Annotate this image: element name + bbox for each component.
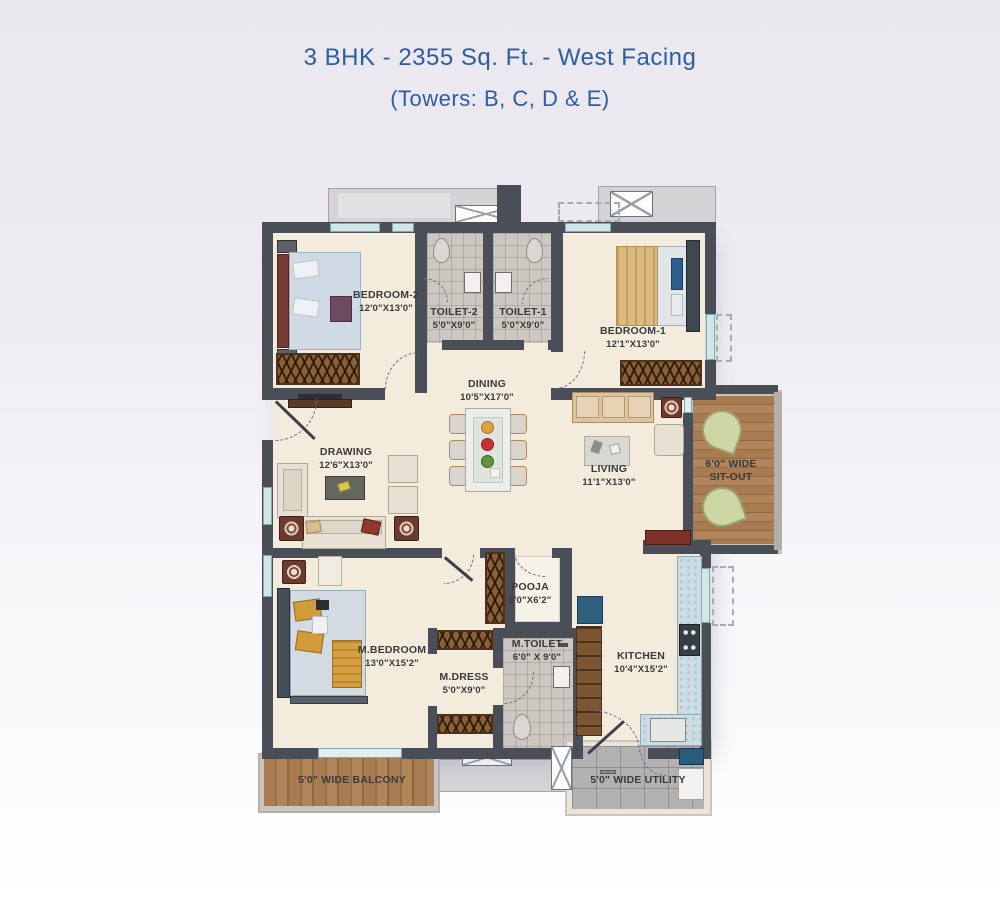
bed-blanket [616, 246, 658, 326]
room-dim: 5'0"X9'0" [439, 684, 488, 697]
wall-bottom-a [262, 748, 318, 759]
room-label-balcony: 5'0" WIDE BALCONY [298, 774, 406, 787]
wc-toilet1 [526, 238, 543, 263]
room-label-sitout: 6'0" WIDE SIT-OUT [705, 458, 756, 484]
room-label-drawing: DRAWING 12'6"X13'0" [319, 446, 373, 472]
wall-pooja-right [560, 548, 572, 632]
room-dim: 11'1"X13'0" [582, 476, 635, 489]
armchair [654, 424, 684, 456]
plate-icon [481, 421, 494, 434]
sofa-cushion [602, 396, 625, 418]
wall-mdress-left-a [428, 628, 437, 654]
cushion [305, 520, 322, 534]
armchair [388, 455, 418, 483]
balcony-slider-door [318, 748, 402, 758]
room-label-bedroom2: BEDROOM-2 12'0"X13'0" [353, 289, 419, 315]
room-label-mtoilet: M.TOILET 6'0" X 9'0" [512, 638, 562, 664]
room-dim: 12'1"X13'0" [600, 338, 666, 351]
refrigerator [577, 596, 603, 624]
room-label-mbedroom: M.BEDROOM 13'0"X15'2" [358, 644, 426, 670]
bed-bench [290, 696, 368, 704]
speaker [394, 516, 419, 541]
window [565, 223, 611, 232]
stove-icon [679, 624, 700, 656]
room-label-toilet1: TOILET-1 5'0"X9'0" [499, 306, 547, 332]
floor-plan: BEDROOM-2 12'0"X13'0" TOILET-2 5'0"X9'0"… [0, 0, 1000, 900]
room-name: M.TOILET [512, 638, 562, 651]
tv-console [645, 530, 691, 545]
armchair [388, 486, 418, 514]
speaker [661, 397, 682, 418]
window [330, 223, 380, 232]
pillow [312, 616, 328, 634]
plate-icon [481, 438, 494, 451]
napkin-icon [490, 468, 500, 478]
room-name: LIVING [582, 463, 635, 476]
wall-mdress-left-b [428, 706, 437, 748]
room-label-bedroom1: BEDROOM-1 12'1"X13'0" [600, 325, 666, 351]
room-name: 5'0" WIDE UTILITY [590, 774, 685, 787]
wall-sitout-bottom [711, 545, 778, 554]
bed-headboard [277, 254, 289, 348]
wall-toilets-divider [483, 233, 493, 345]
pillow [671, 294, 683, 316]
room-dim: 10'5"X17'0" [460, 391, 514, 404]
room-name: POOJA [509, 581, 552, 594]
sitout-parapet [774, 392, 782, 550]
bed-tray [316, 600, 329, 610]
pillow [671, 258, 683, 290]
window [263, 555, 272, 597]
wall-mtoilet-top [493, 628, 583, 638]
wardrobe-mdress-bottom [437, 714, 493, 734]
room-dim: 6'0" X 9'0" [512, 651, 562, 664]
room-label-mdress: M.DRESS 5'0"X9'0" [439, 671, 488, 697]
room-label-dining: DINING 10'5"X17'0" [460, 378, 514, 404]
washing-machine [679, 748, 704, 765]
salad-bowl-icon [481, 455, 494, 468]
top-corridor-landing [338, 193, 450, 218]
wardrobe-bedroom2 [276, 353, 360, 385]
room-name: M.BEDROOM [358, 644, 426, 657]
washbasin-toilet2 [464, 272, 481, 293]
room-dim: 5'0"X6'2" [509, 594, 552, 607]
room-name: SIT-OUT [705, 471, 756, 484]
projection-dashed-box [716, 314, 732, 362]
window [701, 568, 710, 623]
pillow [292, 259, 320, 279]
room-name: M.DRESS [439, 671, 488, 684]
wall-left-upper [262, 222, 273, 398]
floor-plan-page: 3 BHK - 2355 Sq. Ft. - West Facing (Towe… [0, 0, 1000, 900]
projection-dashed-box [712, 566, 734, 626]
room-dim: 5'0"X9'0" [499, 319, 547, 332]
wall-mdress-mtoilet-a [493, 628, 503, 668]
room-dim: 5'0"X9'0" [430, 319, 478, 332]
wall-right-upper-a [705, 222, 716, 314]
sitout-slider-door [684, 397, 692, 413]
projection-dashed-box [558, 202, 620, 222]
sofa-cushion [628, 396, 651, 418]
room-name: 6'0" WIDE [705, 458, 756, 471]
room-name: 5'0" WIDE BALCONY [298, 774, 406, 787]
room-name: TOILET-1 [499, 306, 547, 319]
wardrobe-bedroom1 [620, 360, 702, 386]
room-label-utility: 5'0" WIDE UTILITY [590, 774, 685, 787]
speaker [282, 560, 306, 584]
room-name: TOILET-2 [430, 306, 478, 319]
wall-living-sitout [683, 413, 693, 544]
room-label-kitchen: KITCHEN 10'4"X15'2" [614, 650, 668, 676]
washbasin-toilet1 [495, 272, 512, 293]
room-label-living: LIVING 11'1"X13'0" [582, 463, 635, 489]
room-name: DRAWING [319, 446, 373, 459]
wall-segment [497, 185, 521, 222]
sofa-cushion [576, 396, 599, 418]
speaker [279, 516, 304, 541]
room-label-pooja: POOJA 5'0"X6'2" [509, 581, 552, 607]
room-name: DINING [460, 378, 514, 391]
kitchen-sink [650, 718, 686, 742]
room-name: BEDROOM-1 [600, 325, 666, 338]
window [392, 223, 414, 232]
dining-chair [509, 414, 527, 434]
wall-mdress-mtoilet-b [493, 705, 503, 748]
wc-toilet2 [433, 238, 450, 263]
column-icon [551, 746, 572, 790]
wardrobe-mdress-top [437, 630, 493, 650]
bed-headboard [277, 588, 290, 698]
wall-toilet1-bed1 [551, 233, 563, 352]
room-dim: 13'0"X15'2" [358, 657, 426, 670]
pillow [292, 297, 320, 317]
loveseat-cushion [283, 469, 302, 511]
wardrobe-mbedroom [485, 552, 505, 624]
dining-chair [509, 440, 527, 460]
room-name: BEDROOM-2 [353, 289, 419, 302]
wall-drawing-mbed [262, 548, 442, 558]
window [706, 314, 715, 360]
window [263, 487, 272, 525]
room-dim: 12'6"X13'0" [319, 459, 373, 472]
bed-headboard [686, 240, 700, 332]
washbasin-mtoilet [553, 666, 570, 688]
room-dim: 12'0"X13'0" [353, 302, 419, 315]
dining-chair [509, 466, 527, 486]
room-dim: 10'4"X15'2" [614, 663, 668, 676]
bed-throw [330, 296, 352, 322]
armchair [318, 556, 342, 586]
wall-toilets-bottom-a [442, 340, 524, 350]
room-name: KITCHEN [614, 650, 668, 663]
room-label-toilet2: TOILET-2 5'0"X9'0" [430, 306, 478, 332]
wc-mtoilet [513, 714, 531, 740]
